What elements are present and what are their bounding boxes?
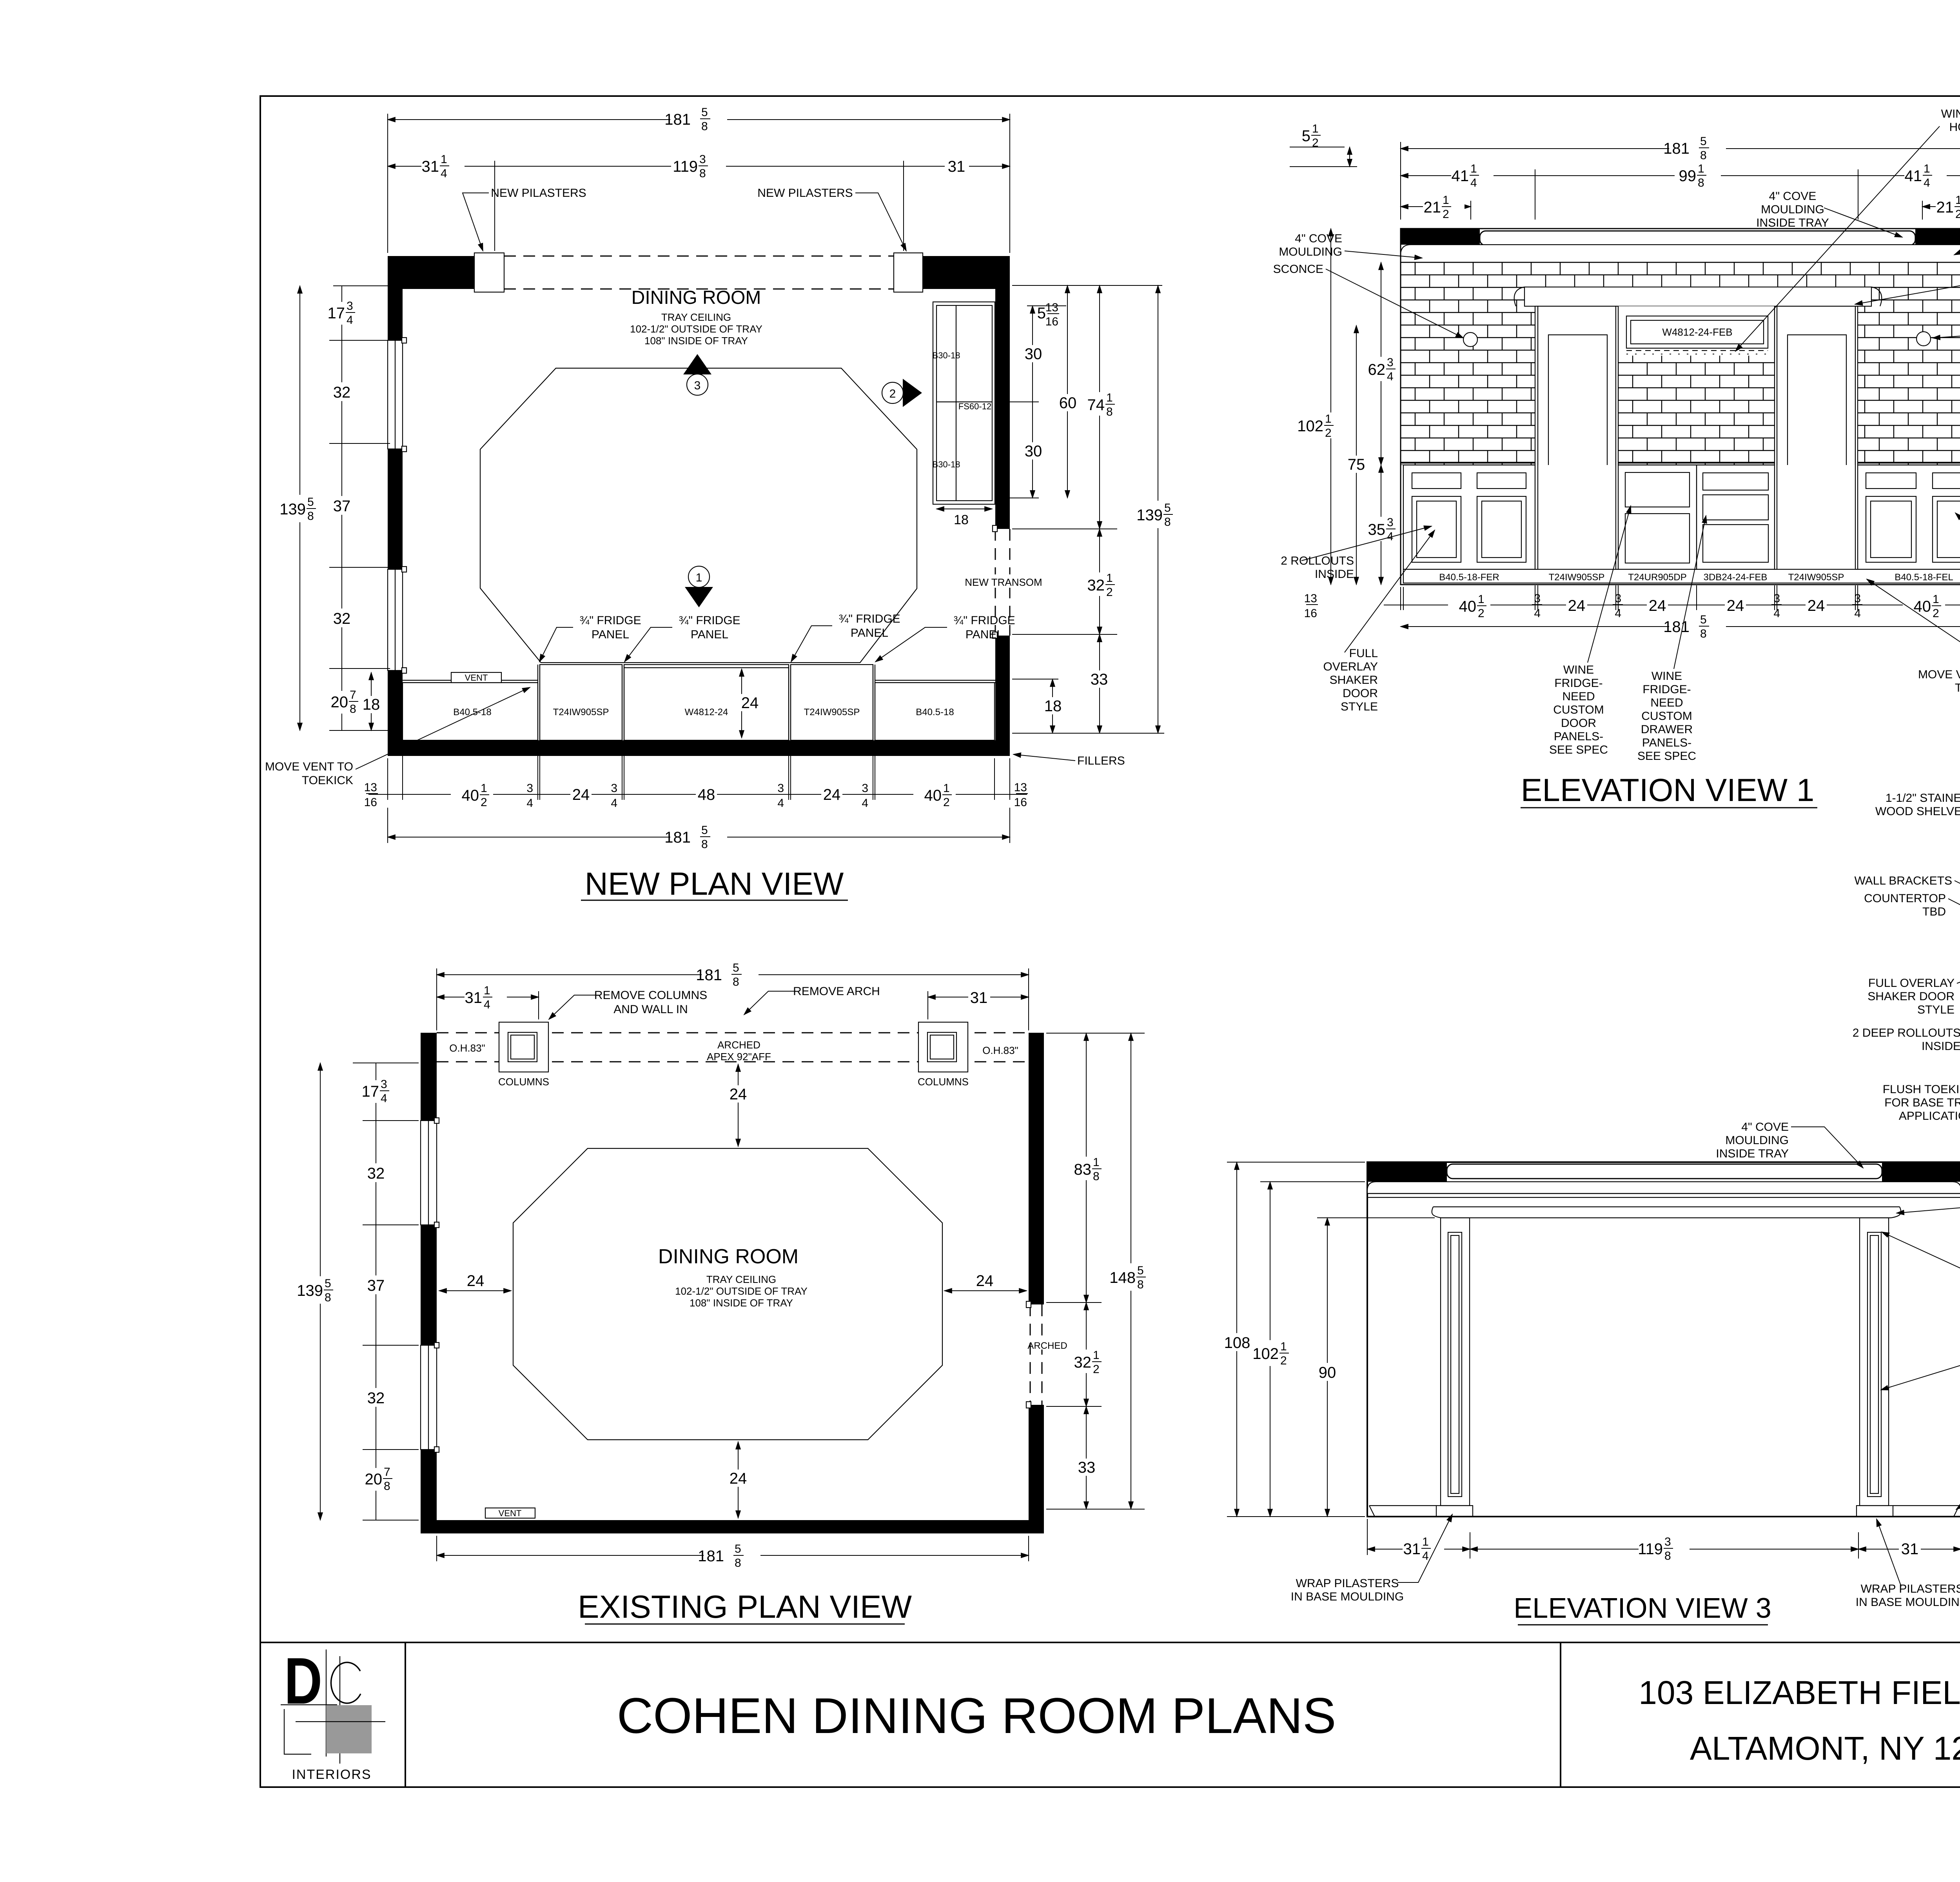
svg-text:STYLE: STYLE xyxy=(1917,1003,1955,1016)
svg-text:WINE: WINE xyxy=(1651,670,1682,683)
svg-text:4: 4 xyxy=(1387,370,1394,383)
svg-text:8: 8 xyxy=(1664,1550,1671,1562)
svg-text:WOOD SHELVES: WOOD SHELVES xyxy=(1875,805,1960,818)
svg-text:8: 8 xyxy=(1106,405,1113,418)
svg-text:4: 4 xyxy=(1534,607,1541,620)
svg-text:DINING ROOM: DINING ROOM xyxy=(632,287,761,308)
svg-text:24: 24 xyxy=(741,694,759,712)
svg-text:103 ELIZABETH FIELD WAY: 103 ELIZABETH FIELD WAY xyxy=(1639,1674,1960,1711)
svg-text:24: 24 xyxy=(1808,597,1825,614)
svg-text:8: 8 xyxy=(699,167,706,180)
svg-text:24: 24 xyxy=(1568,597,1586,614)
svg-text:17: 17 xyxy=(328,305,345,322)
svg-text:¾" FRIDGE: ¾" FRIDGE xyxy=(579,614,641,627)
svg-text:FLUSH TOEKICK: FLUSH TOEKICK xyxy=(1883,1083,1960,1096)
svg-text:FOR BASE TRIM: FOR BASE TRIM xyxy=(1884,1096,1960,1109)
svg-text:8: 8 xyxy=(325,1291,331,1304)
svg-text:INSIDE: INSIDE xyxy=(1315,568,1354,581)
svg-text:181: 181 xyxy=(1663,618,1690,636)
svg-text:31: 31 xyxy=(465,989,483,1006)
svg-text:B40.5-18-FER: B40.5-18-FER xyxy=(1439,572,1499,583)
svg-text:1: 1 xyxy=(1106,572,1113,585)
svg-text:ARCHED: ARCHED xyxy=(717,1039,760,1051)
svg-text:INSIDE TRAY: INSIDE TRAY xyxy=(1756,216,1829,229)
svg-text:2: 2 xyxy=(1280,1354,1287,1367)
svg-text:8: 8 xyxy=(735,1557,741,1570)
svg-text:3: 3 xyxy=(526,782,533,795)
svg-text:17: 17 xyxy=(362,1083,379,1100)
svg-text:2: 2 xyxy=(943,796,950,809)
svg-text:32: 32 xyxy=(367,1165,385,1182)
svg-text:PANEL: PANEL xyxy=(592,628,629,641)
svg-text:20: 20 xyxy=(365,1471,383,1488)
svg-text:24: 24 xyxy=(976,1272,994,1290)
svg-text:181: 181 xyxy=(696,966,722,984)
svg-text:WINE: WINE xyxy=(1563,663,1594,676)
svg-text:1-1/2" STAINED: 1-1/2" STAINED xyxy=(1886,792,1960,805)
svg-text:21: 21 xyxy=(1936,199,1954,216)
svg-text:108: 108 xyxy=(1224,1334,1250,1352)
svg-text:5: 5 xyxy=(735,1542,741,1555)
svg-text:8: 8 xyxy=(307,510,314,523)
svg-text:2: 2 xyxy=(1933,607,1939,620)
svg-text:18: 18 xyxy=(954,512,969,527)
svg-text:7: 7 xyxy=(350,688,356,701)
svg-text:O.H.83": O.H.83" xyxy=(449,1042,485,1054)
svg-text:31: 31 xyxy=(970,989,988,1006)
svg-text:30: 30 xyxy=(1025,345,1042,363)
svg-text:24: 24 xyxy=(823,786,841,803)
svg-text:3: 3 xyxy=(694,379,701,392)
svg-text:40: 40 xyxy=(924,787,942,804)
svg-text:8: 8 xyxy=(701,120,708,133)
svg-text:90: 90 xyxy=(1319,1364,1336,1381)
svg-text:3: 3 xyxy=(1773,592,1780,605)
svg-text:35: 35 xyxy=(1368,521,1386,538)
svg-text:5: 5 xyxy=(1700,613,1707,626)
svg-text:31: 31 xyxy=(422,158,439,175)
svg-text:24: 24 xyxy=(1649,597,1666,614)
svg-text:4: 4 xyxy=(611,797,617,810)
svg-text:4" COVE: 4" COVE xyxy=(1741,1121,1789,1134)
svg-text:24: 24 xyxy=(730,1470,747,1487)
svg-text:3: 3 xyxy=(1387,356,1394,369)
svg-text:3: 3 xyxy=(381,1078,387,1091)
svg-text:102-1/2" OUTSIDE OF TRAY: 102-1/2" OUTSIDE OF TRAY xyxy=(675,1285,808,1297)
svg-text:8: 8 xyxy=(1700,627,1707,640)
svg-text:74: 74 xyxy=(1087,396,1105,414)
svg-text:MOVE VENT TO: MOVE VENT TO xyxy=(1918,668,1960,681)
svg-text:COHEN DINING ROOM PLANS: COHEN DINING ROOM PLANS xyxy=(617,1688,1336,1744)
svg-text:NEW PILASTERS: NEW PILASTERS xyxy=(757,187,853,200)
svg-text:8: 8 xyxy=(384,1480,390,1493)
svg-text:SHAKER DOOR: SHAKER DOOR xyxy=(1867,990,1955,1003)
svg-text:2: 2 xyxy=(889,387,896,400)
svg-text:3: 3 xyxy=(611,782,617,795)
svg-text:D: D xyxy=(284,1644,322,1718)
svg-text:30: 30 xyxy=(1025,443,1042,460)
svg-text:WRAP PILASTERS: WRAP PILASTERS xyxy=(1861,1582,1960,1595)
svg-text:2: 2 xyxy=(481,796,487,809)
svg-text:60: 60 xyxy=(1059,394,1077,412)
svg-text:21: 21 xyxy=(1424,199,1441,216)
svg-text:40: 40 xyxy=(462,787,479,804)
svg-text:2: 2 xyxy=(1312,136,1319,149)
svg-text:4: 4 xyxy=(1615,607,1621,620)
svg-text:PANEL: PANEL xyxy=(965,628,1003,641)
svg-text:16: 16 xyxy=(364,796,377,809)
svg-text:16: 16 xyxy=(1014,796,1027,809)
svg-text:31: 31 xyxy=(948,158,965,175)
svg-text:24: 24 xyxy=(572,786,590,803)
svg-text:5: 5 xyxy=(307,496,314,509)
svg-text:32: 32 xyxy=(333,384,351,401)
svg-text:VENT: VENT xyxy=(465,673,488,683)
svg-text:3: 3 xyxy=(347,300,353,312)
svg-text:4: 4 xyxy=(1924,176,1930,189)
svg-text:APEX 92"AFF: APEX 92"AFF xyxy=(707,1051,771,1063)
svg-text:NEED: NEED xyxy=(1650,696,1683,709)
svg-text:TOEKICK: TOEKICK xyxy=(1955,681,1960,694)
svg-text:2: 2 xyxy=(1106,586,1113,599)
svg-text:2: 2 xyxy=(1443,208,1449,221)
svg-text:FRIDGE-: FRIDGE- xyxy=(1554,677,1602,690)
svg-text:24: 24 xyxy=(467,1272,485,1290)
svg-text:REMOVE COLUMNS: REMOVE COLUMNS xyxy=(594,989,707,1002)
svg-text:32: 32 xyxy=(1074,1354,1092,1371)
svg-text:119: 119 xyxy=(673,158,698,175)
svg-text:4: 4 xyxy=(1773,607,1780,620)
svg-text:3: 3 xyxy=(1664,1535,1671,1548)
svg-text:ELEVATION VIEW 1: ELEVATION VIEW 1 xyxy=(1521,772,1815,808)
svg-text:40: 40 xyxy=(1459,598,1477,615)
svg-text:108" INSIDE OF TRAY: 108" INSIDE OF TRAY xyxy=(690,1297,793,1309)
svg-text:NEW PLAN VIEW: NEW PLAN VIEW xyxy=(585,866,844,902)
svg-text:1: 1 xyxy=(1443,194,1449,207)
svg-text:SEE SPEC: SEE SPEC xyxy=(1637,750,1696,763)
svg-text:DOOR: DOOR xyxy=(1343,687,1378,700)
svg-text:4: 4 xyxy=(1854,607,1861,620)
svg-text:REMOVE ARCH: REMOVE ARCH xyxy=(793,985,880,998)
svg-text:2: 2 xyxy=(1325,427,1332,440)
svg-text:5: 5 xyxy=(325,1277,331,1290)
svg-text:FULL: FULL xyxy=(1349,647,1378,660)
svg-text:TRAY CEILING: TRAY CEILING xyxy=(661,311,731,323)
svg-text:1: 1 xyxy=(1312,122,1319,135)
svg-text:TOEKICK: TOEKICK xyxy=(302,774,353,787)
svg-text:24: 24 xyxy=(730,1086,747,1103)
svg-text:32: 32 xyxy=(367,1390,385,1407)
svg-text:O.H.83": O.H.83" xyxy=(982,1045,1018,1056)
svg-text:SEE SPEC: SEE SPEC xyxy=(1549,743,1608,756)
svg-text:3: 3 xyxy=(699,153,706,166)
svg-text:4" COVE: 4" COVE xyxy=(1295,232,1342,245)
svg-text:NEW PILASTERS: NEW PILASTERS xyxy=(491,187,586,200)
svg-text:W4812-24-FEB: W4812-24-FEB xyxy=(1662,326,1732,338)
svg-text:102: 102 xyxy=(1297,418,1323,435)
svg-text:B40.5-18: B40.5-18 xyxy=(916,707,954,718)
svg-text:4: 4 xyxy=(1470,176,1477,189)
svg-text:TBD: TBD xyxy=(1922,905,1946,918)
svg-text:2 DEEP ROLLOUTS: 2 DEEP ROLLOUTS xyxy=(1853,1026,1960,1039)
svg-text:FULL OVERLAY: FULL OVERLAY xyxy=(1868,977,1955,990)
svg-text:1: 1 xyxy=(441,153,447,166)
svg-text:181: 181 xyxy=(664,829,691,846)
svg-text:8: 8 xyxy=(1137,1278,1144,1291)
svg-text:1: 1 xyxy=(1093,1156,1100,1169)
svg-text:8: 8 xyxy=(350,703,356,716)
svg-text:62: 62 xyxy=(1368,361,1386,378)
svg-text:4: 4 xyxy=(381,1092,387,1105)
svg-text:148: 148 xyxy=(1109,1269,1136,1286)
svg-text:4: 4 xyxy=(526,797,533,810)
svg-text:75: 75 xyxy=(1348,456,1365,473)
svg-text:SCONCE: SCONCE xyxy=(1273,263,1323,276)
svg-text:MOULDING: MOULDING xyxy=(1279,245,1342,258)
svg-text:DOOR: DOOR xyxy=(1561,717,1596,730)
svg-text:13: 13 xyxy=(1304,592,1317,605)
svg-text:PANEL: PANEL xyxy=(691,628,728,641)
svg-text:¾" FRIDGE: ¾" FRIDGE xyxy=(953,614,1015,627)
svg-text:102: 102 xyxy=(1252,1345,1279,1362)
svg-text:31: 31 xyxy=(1901,1540,1919,1558)
svg-text:16: 16 xyxy=(1304,607,1317,620)
svg-text:IN BASE MOULDING: IN BASE MOULDING xyxy=(1856,1596,1960,1609)
svg-text:1: 1 xyxy=(484,984,490,997)
svg-text:FS60-12: FS60-12 xyxy=(958,401,991,411)
svg-text:33: 33 xyxy=(1078,1459,1096,1476)
svg-text:AND WALL IN: AND WALL IN xyxy=(613,1003,688,1016)
svg-text:HOLDERS: HOLDERS xyxy=(1949,121,1960,134)
svg-text:181: 181 xyxy=(1663,140,1690,157)
svg-text:4: 4 xyxy=(777,797,784,810)
svg-text:MOULDING: MOULDING xyxy=(1761,203,1824,216)
svg-text:32: 32 xyxy=(333,610,351,627)
svg-text:TRAY CEILING: TRAY CEILING xyxy=(706,1273,776,1285)
svg-text:5: 5 xyxy=(1302,127,1310,145)
svg-text:NEED: NEED xyxy=(1562,690,1595,703)
svg-text:7: 7 xyxy=(384,1466,390,1479)
svg-text:4: 4 xyxy=(441,167,447,180)
svg-text:T24UR905DP: T24UR905DP xyxy=(1628,572,1686,583)
svg-text:PANELS-: PANELS- xyxy=(1554,730,1603,743)
svg-text:1: 1 xyxy=(1093,1349,1100,1362)
svg-text:1: 1 xyxy=(1478,593,1485,606)
svg-text:4: 4 xyxy=(1422,1550,1429,1562)
svg-text:13: 13 xyxy=(1045,301,1058,314)
svg-text:8: 8 xyxy=(1164,516,1171,529)
svg-text:3: 3 xyxy=(1854,592,1861,605)
svg-text:139: 139 xyxy=(1136,507,1163,524)
svg-text:37: 37 xyxy=(367,1277,385,1294)
svg-text:41: 41 xyxy=(1452,167,1469,185)
svg-text:13: 13 xyxy=(1014,781,1027,794)
svg-text:INTERIORS: INTERIORS xyxy=(292,1767,371,1782)
svg-text:2: 2 xyxy=(1955,208,1960,221)
svg-text:108" INSIDE OF TRAY: 108" INSIDE OF TRAY xyxy=(644,335,748,347)
svg-text:1: 1 xyxy=(1933,593,1939,606)
svg-text:33: 33 xyxy=(1091,671,1108,688)
svg-text:OVERLAY: OVERLAY xyxy=(1323,660,1378,673)
svg-text:16: 16 xyxy=(1045,315,1058,328)
svg-text:T24IW905SP: T24IW905SP xyxy=(804,707,860,718)
svg-text:5: 5 xyxy=(733,961,739,974)
svg-text:2: 2 xyxy=(1093,1363,1100,1376)
svg-text:99: 99 xyxy=(1679,167,1697,185)
svg-text:31: 31 xyxy=(1403,1540,1421,1558)
svg-text:5: 5 xyxy=(701,106,708,119)
svg-text:FRIDGE-: FRIDGE- xyxy=(1642,683,1691,696)
svg-text:APPLICATION: APPLICATION xyxy=(1899,1110,1960,1123)
svg-text:PANELS-: PANELS- xyxy=(1642,736,1691,749)
svg-text:IN BASE MOULDING: IN BASE MOULDING xyxy=(1291,1590,1404,1603)
svg-text:1: 1 xyxy=(481,782,487,795)
svg-text:INSIDE TRAY: INSIDE TRAY xyxy=(1716,1147,1789,1160)
svg-text:4: 4 xyxy=(347,314,353,327)
svg-text:181: 181 xyxy=(698,1548,724,1565)
svg-text:4: 4 xyxy=(484,998,490,1011)
svg-text:139: 139 xyxy=(297,1282,323,1299)
svg-text:3: 3 xyxy=(777,782,784,795)
svg-text:5: 5 xyxy=(1137,1264,1144,1277)
svg-text:8: 8 xyxy=(733,976,739,988)
svg-text:WALL BRACKETS: WALL BRACKETS xyxy=(1854,874,1952,887)
svg-text:3: 3 xyxy=(862,782,868,795)
svg-text:8: 8 xyxy=(1698,176,1704,189)
svg-text:CUSTOM: CUSTOM xyxy=(1553,703,1604,716)
svg-text:DINING ROOM: DINING ROOM xyxy=(658,1245,799,1268)
svg-text:WINE GLASS: WINE GLASS xyxy=(1941,107,1960,120)
svg-text:41: 41 xyxy=(1905,167,1922,185)
svg-text:5: 5 xyxy=(1037,305,1046,322)
svg-text:139: 139 xyxy=(279,501,306,518)
svg-text:1: 1 xyxy=(1280,1340,1287,1353)
svg-text:FILLERS: FILLERS xyxy=(1077,754,1125,767)
svg-text:1: 1 xyxy=(696,571,702,584)
svg-text:STYLE: STYLE xyxy=(1341,700,1378,713)
svg-text:ELEVATION VIEW 3: ELEVATION VIEW 3 xyxy=(1514,1593,1771,1624)
svg-text:B30-18: B30-18 xyxy=(933,351,960,360)
svg-text:¾" FRIDGE: ¾" FRIDGE xyxy=(679,614,740,627)
svg-text:1: 1 xyxy=(1470,162,1477,175)
svg-text:ALTAMONT, NY 12009: ALTAMONT, NY 12009 xyxy=(1690,1730,1960,1767)
svg-text:W4812-24: W4812-24 xyxy=(685,707,728,718)
svg-text:1: 1 xyxy=(1422,1535,1429,1548)
svg-text:PANEL: PANEL xyxy=(851,627,888,639)
svg-text:181: 181 xyxy=(664,111,691,128)
svg-text:13: 13 xyxy=(364,781,377,794)
svg-text:1: 1 xyxy=(1924,162,1930,175)
svg-text:8: 8 xyxy=(1700,149,1707,162)
svg-text:8: 8 xyxy=(1093,1170,1100,1183)
svg-text:1: 1 xyxy=(1325,412,1332,425)
svg-text:5: 5 xyxy=(701,824,708,837)
svg-text:VENT: VENT xyxy=(499,1508,522,1518)
svg-text:24: 24 xyxy=(1727,597,1744,614)
svg-text:DRAWER: DRAWER xyxy=(1641,723,1693,736)
svg-text:CUSTOM: CUSTOM xyxy=(1641,710,1692,723)
svg-text:1: 1 xyxy=(1698,162,1704,175)
svg-text:3: 3 xyxy=(1615,592,1621,605)
svg-text:4: 4 xyxy=(862,797,868,810)
svg-text:4" COVE: 4" COVE xyxy=(1769,190,1817,203)
svg-text:B40.5-18-FEL: B40.5-18-FEL xyxy=(1895,572,1953,583)
svg-text:WRAP PILASTERS: WRAP PILASTERS xyxy=(1296,1577,1399,1590)
svg-text:ARCHED: ARCHED xyxy=(1027,1341,1067,1351)
svg-text:T24IW905SP: T24IW905SP xyxy=(553,707,609,718)
svg-text:COLUMNS: COLUMNS xyxy=(498,1076,549,1088)
svg-text:1: 1 xyxy=(943,782,950,795)
svg-text:3: 3 xyxy=(1387,516,1394,529)
svg-text:18: 18 xyxy=(1044,698,1062,715)
svg-text:119: 119 xyxy=(1638,1540,1663,1558)
svg-text:3: 3 xyxy=(1534,592,1541,605)
svg-text:3DB24-24-FEB: 3DB24-24-FEB xyxy=(1704,572,1768,583)
svg-text:¾" FRIDGE: ¾" FRIDGE xyxy=(838,612,900,625)
svg-text:5: 5 xyxy=(1700,135,1707,148)
svg-text:T24IW905SP: T24IW905SP xyxy=(1549,572,1605,583)
svg-text:MOVE VENT TO: MOVE VENT TO xyxy=(265,760,353,773)
svg-text:37: 37 xyxy=(333,498,351,515)
svg-text:18: 18 xyxy=(363,696,380,713)
svg-text:20: 20 xyxy=(331,694,348,711)
svg-text:1: 1 xyxy=(1106,391,1113,404)
svg-text:32: 32 xyxy=(1087,577,1105,594)
svg-text:102-1/2" OUTSIDE OF TRAY: 102-1/2" OUTSIDE OF TRAY xyxy=(630,323,762,335)
svg-text:1: 1 xyxy=(1955,194,1960,207)
svg-text:5: 5 xyxy=(1164,501,1171,514)
svg-text:T24IW905SP: T24IW905SP xyxy=(1788,572,1844,583)
svg-text:COLUMNS: COLUMNS xyxy=(918,1076,969,1088)
svg-text:EXISTING PLAN VIEW: EXISTING PLAN VIEW xyxy=(578,1589,912,1625)
svg-text:B30-18: B30-18 xyxy=(933,460,960,469)
svg-text:SHAKER: SHAKER xyxy=(1330,674,1378,687)
svg-text:INSIDE: INSIDE xyxy=(1922,1040,1960,1053)
svg-text:2: 2 xyxy=(1478,607,1485,620)
svg-text:83: 83 xyxy=(1074,1161,1092,1178)
svg-text:48: 48 xyxy=(698,786,715,803)
svg-text:MOULDING: MOULDING xyxy=(1725,1134,1789,1147)
svg-text:NEW TRANSOM: NEW TRANSOM xyxy=(965,576,1042,588)
svg-text:COUNTERTOP: COUNTERTOP xyxy=(1864,892,1946,905)
svg-text:8: 8 xyxy=(701,838,708,851)
